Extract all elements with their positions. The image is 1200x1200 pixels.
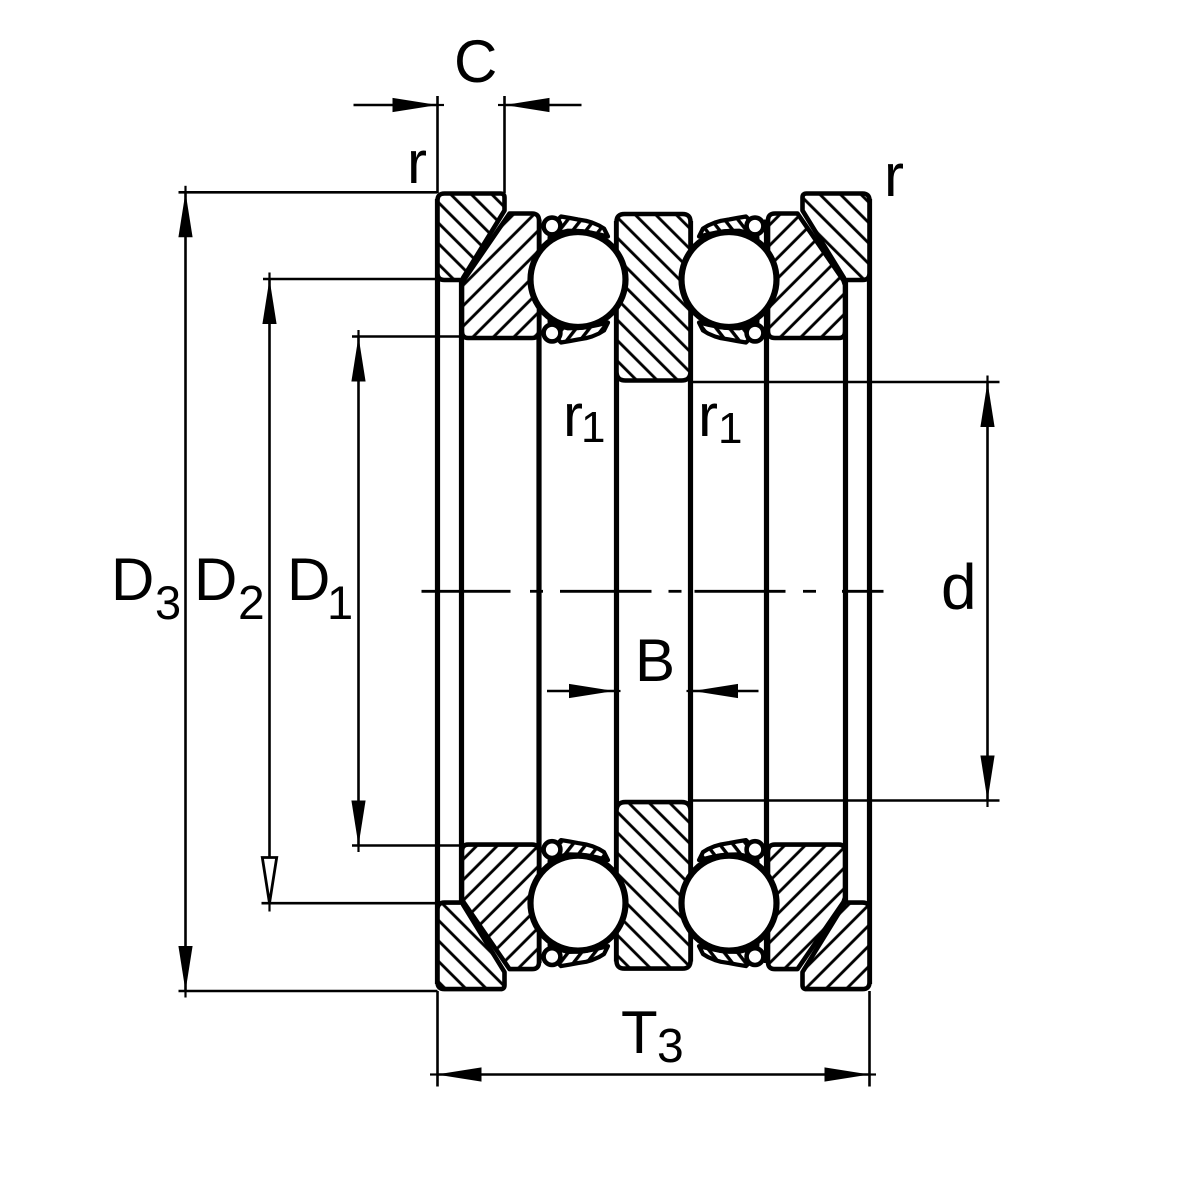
svg-text:d: d: [941, 551, 977, 623]
svg-text:1: 1: [581, 403, 605, 452]
svg-text:B: B: [635, 627, 675, 694]
svg-text:D: D: [287, 546, 330, 613]
svg-text:1: 1: [327, 576, 353, 629]
svg-text:r: r: [407, 129, 427, 196]
svg-text:r: r: [563, 382, 583, 449]
svg-text:r: r: [698, 382, 718, 449]
svg-text:3: 3: [155, 576, 181, 629]
svg-text:C: C: [454, 28, 497, 95]
svg-text:2: 2: [238, 577, 265, 630]
svg-text:3: 3: [657, 1020, 684, 1073]
svg-text:D: D: [111, 546, 154, 613]
svg-text:1: 1: [718, 404, 742, 453]
svg-text:D: D: [194, 546, 237, 613]
svg-text:T: T: [621, 999, 658, 1066]
svg-text:r: r: [884, 142, 904, 209]
